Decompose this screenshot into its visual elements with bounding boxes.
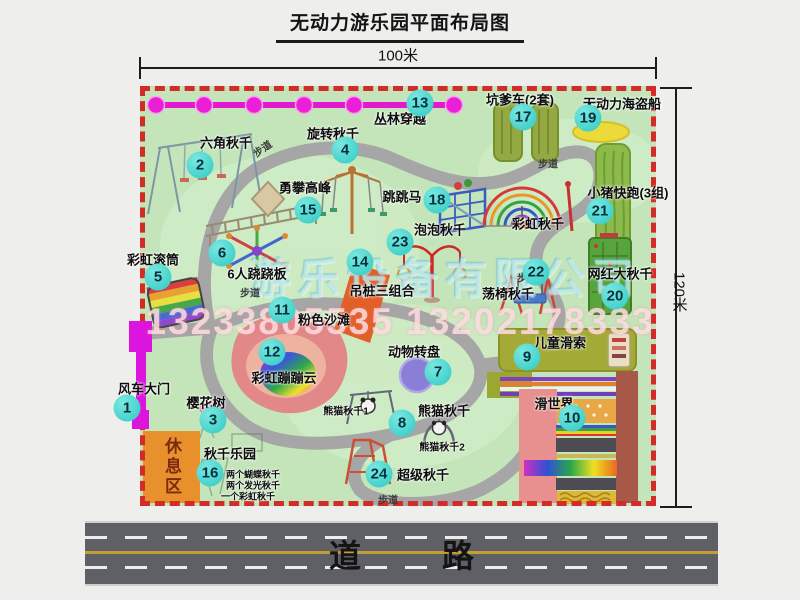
badge-24: 24 <box>366 461 393 488</box>
badge-19: 19 <box>575 105 602 132</box>
top-dimension-label: 100米 <box>378 45 418 66</box>
park-plan-screenshot: 无动力游乐园平面布局图 100米 120米 <box>0 0 800 600</box>
road-label: 道 路 <box>85 523 718 584</box>
right-dimension-tick-bottom <box>660 506 692 508</box>
badge-7: 7 <box>425 359 452 386</box>
attraction-label-swing-chair: 荡椅秋千 <box>482 284 534 303</box>
badge-6: 6 <box>209 240 236 267</box>
attraction-label-seesaw: 6人跷跷板 <box>227 264 286 283</box>
attraction-label-jumping-horse: 跳跳马 <box>382 187 421 206</box>
slide-world-icon <box>487 371 638 504</box>
attraction-label-animal-turntable: 动物转盘 <box>388 342 440 361</box>
watermark-company: 游乐设备有限公司 <box>249 246 641 307</box>
top-dimension-line <box>140 67 656 69</box>
top-dimension-tick-right <box>655 57 657 79</box>
walkway-label: 步道 <box>240 285 260 300</box>
title-bar: 无动力游乐园平面布局图 <box>0 8 800 43</box>
page-title: 无动力游乐园平面布局图 <box>276 8 524 43</box>
rest-area-box: 休息区 <box>143 431 200 503</box>
rest-area-label: 休息区 <box>159 437 184 497</box>
badge-21: 21 <box>587 198 614 225</box>
attraction-label-super-swing: 超级秋千 <box>397 465 449 484</box>
badge-4: 4 <box>332 137 359 164</box>
road: 道 路 <box>85 521 718 586</box>
badge-17: 17 <box>510 104 537 131</box>
attraction-label-rainbow-cloud: 彩虹蹦蹦云 <box>251 368 316 387</box>
badge-12: 12 <box>259 339 286 366</box>
attraction-label-climbing-peak: 勇攀高峰 <box>279 178 331 197</box>
badge-8: 8 <box>389 410 416 437</box>
badge-10: 10 <box>559 405 586 432</box>
attraction-label-hexagon-swing: 六角秋千 <box>200 133 252 152</box>
attraction-label-bubble-swing: 泡泡秋千 <box>414 220 466 239</box>
attraction-label-panda-swing: 熊猫秋千 <box>418 401 470 420</box>
attraction-label-hanging-piles: 吊桩三组合 <box>349 281 414 300</box>
badge-9: 9 <box>514 344 541 371</box>
badge-5: 5 <box>145 264 172 291</box>
swing-park-item-3: 一个彩虹秋千 <box>221 490 275 503</box>
badge-20: 20 <box>602 283 629 310</box>
badge-16: 16 <box>197 460 224 487</box>
attraction-label-kids-zipline: 儿童滑索 <box>534 333 586 352</box>
badge-23: 23 <box>387 229 414 256</box>
panda-swing-1-label: 熊猫秋千1 <box>323 403 369 418</box>
panda-swing-2-label: 熊猫秋千2 <box>419 439 465 454</box>
badge-15: 15 <box>295 197 322 224</box>
badge-14: 14 <box>347 249 374 276</box>
badge-3: 3 <box>200 407 227 434</box>
attraction-label-big-swing: 网红大秋千 <box>587 264 652 283</box>
badge-11: 11 <box>269 297 296 324</box>
attraction-label-pink-beach: 粉色沙滩 <box>298 310 350 329</box>
walkway-label: 步道 <box>378 492 398 507</box>
rainbow-swing-label: 彩虹秋千 <box>512 214 564 233</box>
badge-2: 2 <box>187 152 214 179</box>
right-dimension-label: 120米 <box>669 272 690 312</box>
badge-18: 18 <box>424 187 451 214</box>
right-dimension-tick-top <box>660 87 692 89</box>
badge-22: 22 <box>523 259 550 286</box>
top-dimension-tick-left <box>139 57 141 79</box>
walkway-label: 步道 <box>538 156 558 171</box>
badge-1: 1 <box>114 395 141 422</box>
badge-13: 13 <box>407 90 434 117</box>
